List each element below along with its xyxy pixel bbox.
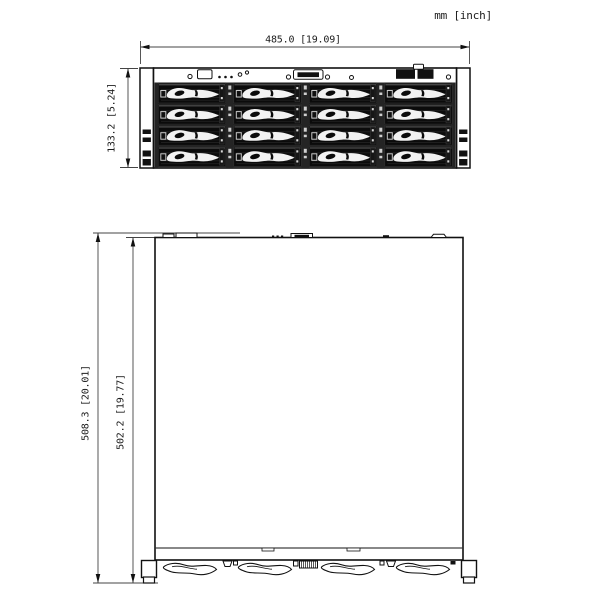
latch-tab-icon <box>387 561 396 567</box>
drive-bay-area <box>155 83 456 168</box>
pin-connector-icon <box>300 561 318 568</box>
dvi-port-icon <box>298 72 320 77</box>
bay-indicator-icon <box>379 114 382 117</box>
bay-indicator-icon <box>228 107 231 111</box>
handle-swoosh-icon <box>396 563 449 574</box>
status-led-icon <box>230 76 233 79</box>
drive-tray <box>234 147 301 167</box>
corner-foot-icon <box>144 577 155 583</box>
bay-indicator-icon <box>304 135 307 138</box>
latch-tab-icon <box>380 561 384 565</box>
drive-tray <box>158 126 225 146</box>
mount-slot-icon <box>459 138 467 143</box>
left-rack-ear <box>140 68 154 168</box>
front-height-dimension <box>120 69 138 168</box>
latch-tab-icon <box>234 561 238 565</box>
power-button-icon <box>414 64 424 69</box>
drive-tray <box>158 147 225 167</box>
bay-indicator-icon <box>304 114 307 117</box>
seam-notch-icon <box>262 548 274 551</box>
corner-bracket-icon <box>462 561 477 578</box>
drive-tray <box>385 126 452 146</box>
drive-tray <box>309 83 376 103</box>
bay-indicator-icon <box>228 114 231 117</box>
drive-tray <box>234 83 301 103</box>
usb-top-icon <box>383 235 389 237</box>
corner-bracket-icon <box>142 561 157 578</box>
drive-tray <box>385 104 452 124</box>
bay-indicator-icon <box>379 149 382 153</box>
corner-foot-icon <box>464 577 475 583</box>
led-top-icon <box>272 236 274 238</box>
drive-tray <box>158 83 225 103</box>
bay-column-divider <box>302 83 310 168</box>
drive-tray <box>385 147 452 167</box>
power-button-top-icon <box>431 234 447 237</box>
latch-tab-icon <box>294 561 299 566</box>
led-top-icon <box>281 236 283 238</box>
bay-indicator-icon <box>304 128 307 132</box>
bay-indicator-icon <box>304 156 307 159</box>
front-view <box>120 41 470 168</box>
handle-swoosh-icon <box>321 563 374 574</box>
drive-tray <box>234 104 301 124</box>
bay-indicator-icon <box>379 86 382 90</box>
mount-slot-icon <box>143 130 151 135</box>
handle-swoosh-icon <box>163 563 216 574</box>
handle-swoosh-icon <box>238 563 291 574</box>
usb-ports-icon <box>418 69 434 79</box>
usb-ports-icon <box>396 69 415 79</box>
bay-indicator-icon <box>379 135 382 138</box>
drive-tray <box>309 147 376 167</box>
bay-indicator-icon <box>379 156 382 159</box>
right-rack-ear <box>457 68 471 168</box>
line-art <box>0 0 600 600</box>
top-rear-protrusions <box>142 561 477 584</box>
seam-notch-icon <box>347 548 360 551</box>
status-led-icon <box>224 76 227 79</box>
bay-indicator-icon <box>304 86 307 90</box>
bay-column-divider <box>226 83 234 168</box>
vga-port-top-icon <box>163 234 174 238</box>
status-led-icon <box>218 76 221 79</box>
bay-indicator-icon <box>228 135 231 138</box>
bay-indicator-icon <box>304 93 307 96</box>
bay-indicator-icon <box>304 107 307 111</box>
top-depth-chassis-dimension <box>93 238 158 584</box>
drive-tray <box>385 83 452 103</box>
front-bezel-bump-icon <box>176 233 197 238</box>
mount-slot-icon <box>459 130 467 135</box>
bay-indicator-icon <box>228 128 231 132</box>
latch-tab-icon <box>223 561 232 567</box>
technical-drawing-canvas: mm [inch] 485.0 [19.09] 133.2 [5.24] 508… <box>0 0 600 600</box>
bay-indicator-icon <box>228 86 231 90</box>
bay-indicator-icon <box>228 156 231 159</box>
drive-tray <box>234 126 301 146</box>
bay-column-divider <box>377 83 385 168</box>
mount-slot-icon <box>143 138 151 143</box>
bay-indicator-icon <box>304 149 307 153</box>
bay-indicator-icon <box>228 93 231 96</box>
led-top-icon <box>277 236 279 238</box>
front-width-dimension <box>141 41 470 64</box>
top-view <box>93 233 477 583</box>
bay-indicator-icon <box>379 128 382 132</box>
bay-indicator-icon <box>379 93 382 96</box>
top-body-outline <box>155 238 463 561</box>
bay-indicator-icon <box>379 107 382 111</box>
drive-tray <box>309 126 376 146</box>
drive-tray <box>309 104 376 124</box>
bay-indicator-icon <box>228 149 231 153</box>
drive-tray <box>158 104 225 124</box>
latch-tab-icon <box>451 561 456 565</box>
